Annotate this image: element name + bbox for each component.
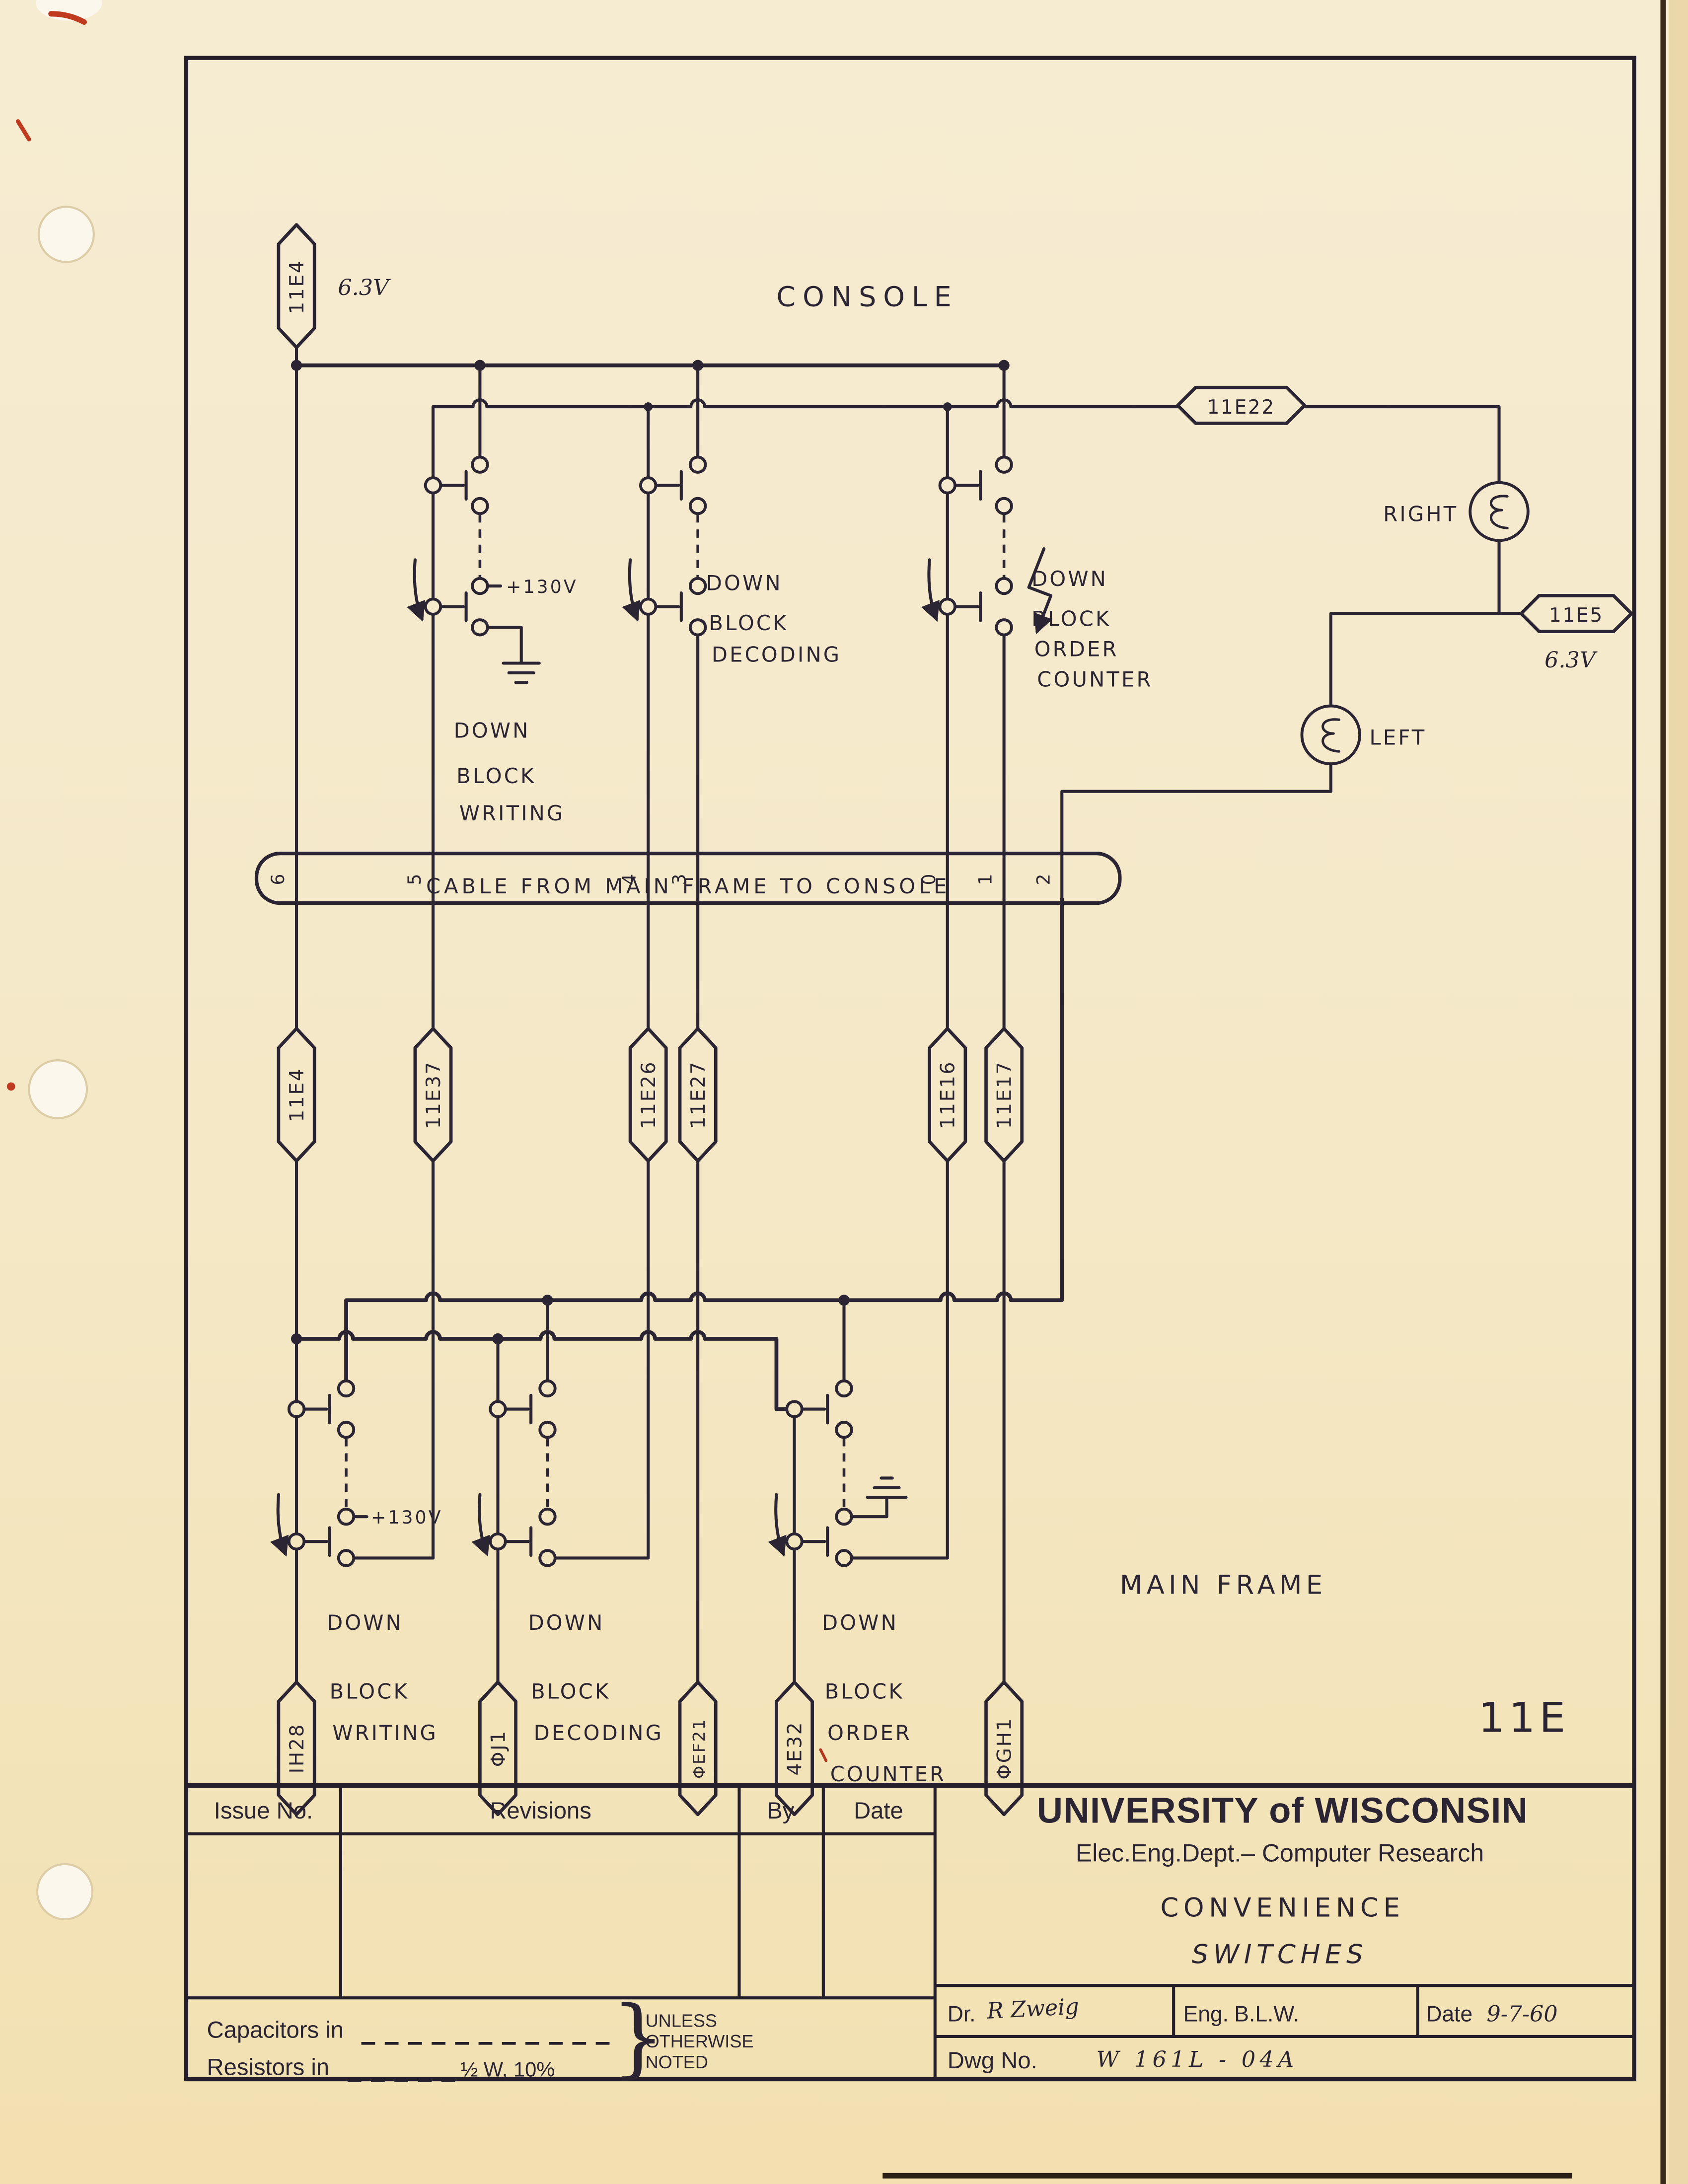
department-name: Elec.Eng.Dept.– Computer Research	[1076, 1839, 1484, 1867]
label-line: COUNTER	[830, 1762, 946, 1786]
pin-number: 2	[1033, 874, 1054, 885]
label-line: BLOCK	[330, 1679, 409, 1704]
scan-right-margin	[1669, 0, 1688, 2184]
label-line: BLOCK	[456, 764, 536, 788]
date-value: 9-7-60	[1487, 2001, 1558, 2027]
label-line: ORDER	[1034, 637, 1119, 661]
pin-number: 6	[268, 874, 289, 885]
label-line: BLOCK	[709, 611, 788, 635]
connector-id: 4E32	[784, 1721, 806, 1776]
sheet-number: 11E	[1478, 1693, 1570, 1742]
label-line: DECODING	[534, 1721, 663, 1745]
connector-id: IH28	[286, 1723, 308, 1773]
label-line: ORDER	[827, 1721, 912, 1745]
voltage-label: 6.3V	[338, 275, 391, 300]
connector-id: 11E17	[994, 1061, 1016, 1129]
dr-label: Dr.	[948, 2002, 976, 2026]
connector-id: 11E37	[423, 1061, 445, 1129]
label-line: BLOCK	[1031, 607, 1111, 631]
pin-number: 5	[404, 874, 425, 885]
column-issue-no: Issue No.	[214, 1798, 313, 1824]
console-section-title: CONSOLE	[776, 281, 958, 313]
dwg-value: W 161L - 04A	[1097, 2047, 1298, 2072]
red-dot-mark	[7, 1083, 15, 1091]
lamp-label: LEFT	[1370, 725, 1427, 749]
eng-value: B.L.W.	[1234, 2002, 1299, 2026]
column-by: By	[767, 1798, 794, 1824]
scan-bottom-line	[882, 2173, 1572, 2179]
connector-id: 11E4	[286, 260, 308, 314]
label-line: DOWN	[454, 718, 530, 742]
column-date: Date	[854, 1798, 903, 1824]
label-line: DOWN	[528, 1610, 605, 1635]
eng-label: Eng.	[1183, 2002, 1229, 2026]
label-line: BLOCK	[825, 1679, 904, 1704]
label-line: DOWN	[1031, 567, 1108, 591]
voltage-130-label: +130V	[506, 577, 578, 597]
hole-punch-2	[29, 1060, 87, 1118]
drawing-title-line1: CONVENIENCE	[1160, 1893, 1404, 1923]
label-line: DOWN	[822, 1610, 898, 1635]
otherwise-line: OTHERWISE	[646, 2031, 754, 2051]
hole-punch-3	[37, 1864, 92, 1919]
connector-id: 11E16	[937, 1061, 959, 1129]
date-cell: Date 9-7-60	[1426, 2001, 1557, 2027]
capacitors-label: Capacitors in	[207, 2017, 344, 2043]
pin-number: 0	[919, 874, 940, 885]
connector-id: ΦJ1	[487, 1730, 510, 1767]
drawing-canvas: CONSOLE MAIN FRAME 11E 11E4 6.3V 11E22	[0, 0, 1688, 2184]
eng-cell: Eng. B.L.W.	[1183, 2002, 1300, 2026]
scan-edge-line	[1660, 0, 1666, 2184]
hole-punch-1	[39, 207, 94, 262]
dr-signature: R Zweig	[986, 1994, 1080, 2024]
resistors-label: Resistors in	[207, 2054, 330, 2081]
connector-id: 11E4	[286, 1068, 308, 1122]
resistor-value: ½ W, 10%	[461, 2057, 555, 2081]
scanned-schematic-sheet: CONSOLE MAIN FRAME 11E 11E4 6.3V 11E22	[0, 0, 1688, 2184]
date-label: Date	[1426, 2002, 1472, 2026]
main-frame-section-title: MAIN FRAME	[1120, 1570, 1327, 1601]
label-line: COUNTER	[1037, 667, 1153, 692]
column-revisions: Revisions	[490, 1798, 591, 1824]
dwg-label: Dwg No.	[948, 2047, 1037, 2074]
connector-id: 11E5	[1549, 604, 1604, 627]
connector-id: ΦGH1	[994, 1717, 1016, 1780]
drawing-title-line2: SWITCHES	[1192, 1940, 1368, 1970]
label-line: WRITING	[332, 1721, 438, 1745]
pin-number: 1	[975, 874, 996, 885]
pin-number: 4	[619, 874, 640, 885]
label-line: WRITING	[459, 801, 565, 825]
connector-id: 11E27	[687, 1061, 710, 1129]
label-line: DECODING	[712, 643, 841, 667]
unless-line: UNLESS	[646, 2010, 717, 2031]
connector-id: 11E26	[638, 1061, 660, 1129]
noted-line: NOTED	[646, 2052, 708, 2072]
pin-number: 3	[669, 874, 690, 885]
label-line: DOWN	[706, 571, 783, 595]
voltage-130-label: +130V	[371, 1507, 443, 1528]
connector-id: ΦEF21	[689, 1718, 709, 1779]
connector-id: 11E22	[1207, 396, 1275, 419]
lamp-label: RIGHT	[1383, 502, 1458, 526]
voltage-label: 6.3V	[1544, 648, 1598, 673]
university-name: UNIVERSITY of WISCONSIN	[1037, 1791, 1528, 1831]
label-line: BLOCK	[531, 1679, 610, 1704]
dwg-no-cell: Dwg No. W 161L - 04A	[948, 2047, 1298, 2074]
label-line: DOWN	[327, 1610, 403, 1635]
